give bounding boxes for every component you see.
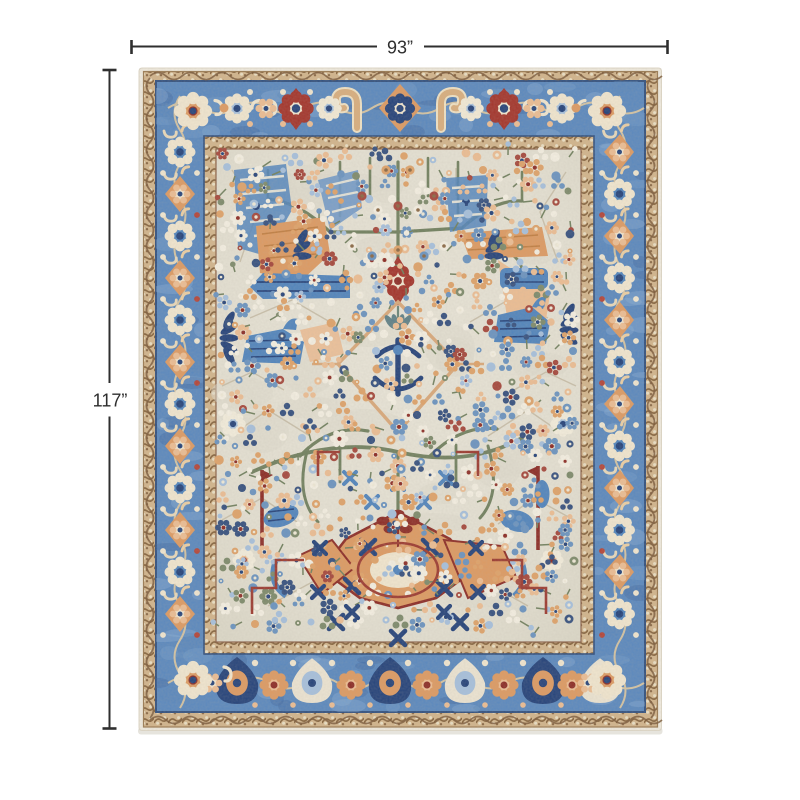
svg-text:93”: 93” — [387, 38, 413, 58]
svg-text:117”: 117” — [93, 391, 128, 411]
